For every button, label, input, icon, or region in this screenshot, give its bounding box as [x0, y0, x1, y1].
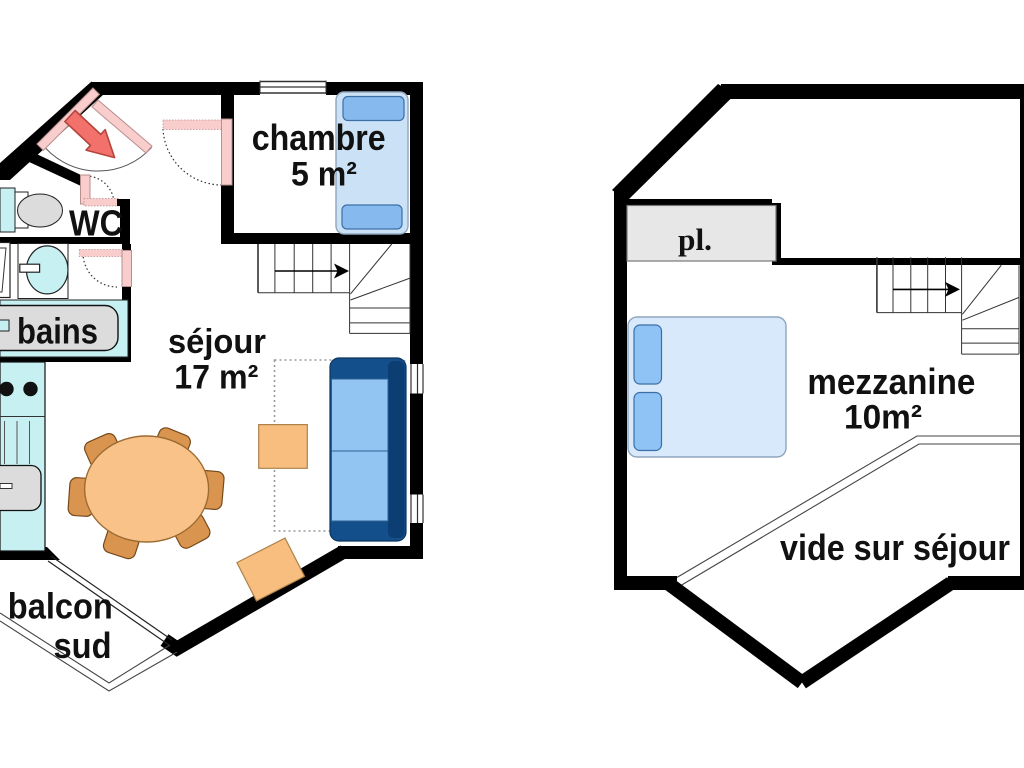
svg-text:sud: sud — [54, 625, 112, 666]
svg-text:vide sur séjour: vide sur séjour — [780, 527, 1010, 568]
svg-text:balcon: balcon — [8, 586, 113, 627]
svg-text:10m²: 10m² — [844, 399, 922, 437]
svg-text:séjour: séjour — [168, 323, 266, 361]
svg-text:chambre: chambre — [252, 117, 386, 158]
svg-text:17 m²: 17 m² — [174, 359, 258, 397]
svg-text:mezzanine: mezzanine — [807, 361, 975, 402]
svg-text:WC: WC — [69, 202, 123, 243]
svg-text:5 m²: 5 m² — [291, 156, 357, 194]
svg-text:bains: bains — [17, 311, 98, 352]
svg-text:pl.: pl. — [678, 222, 712, 257]
